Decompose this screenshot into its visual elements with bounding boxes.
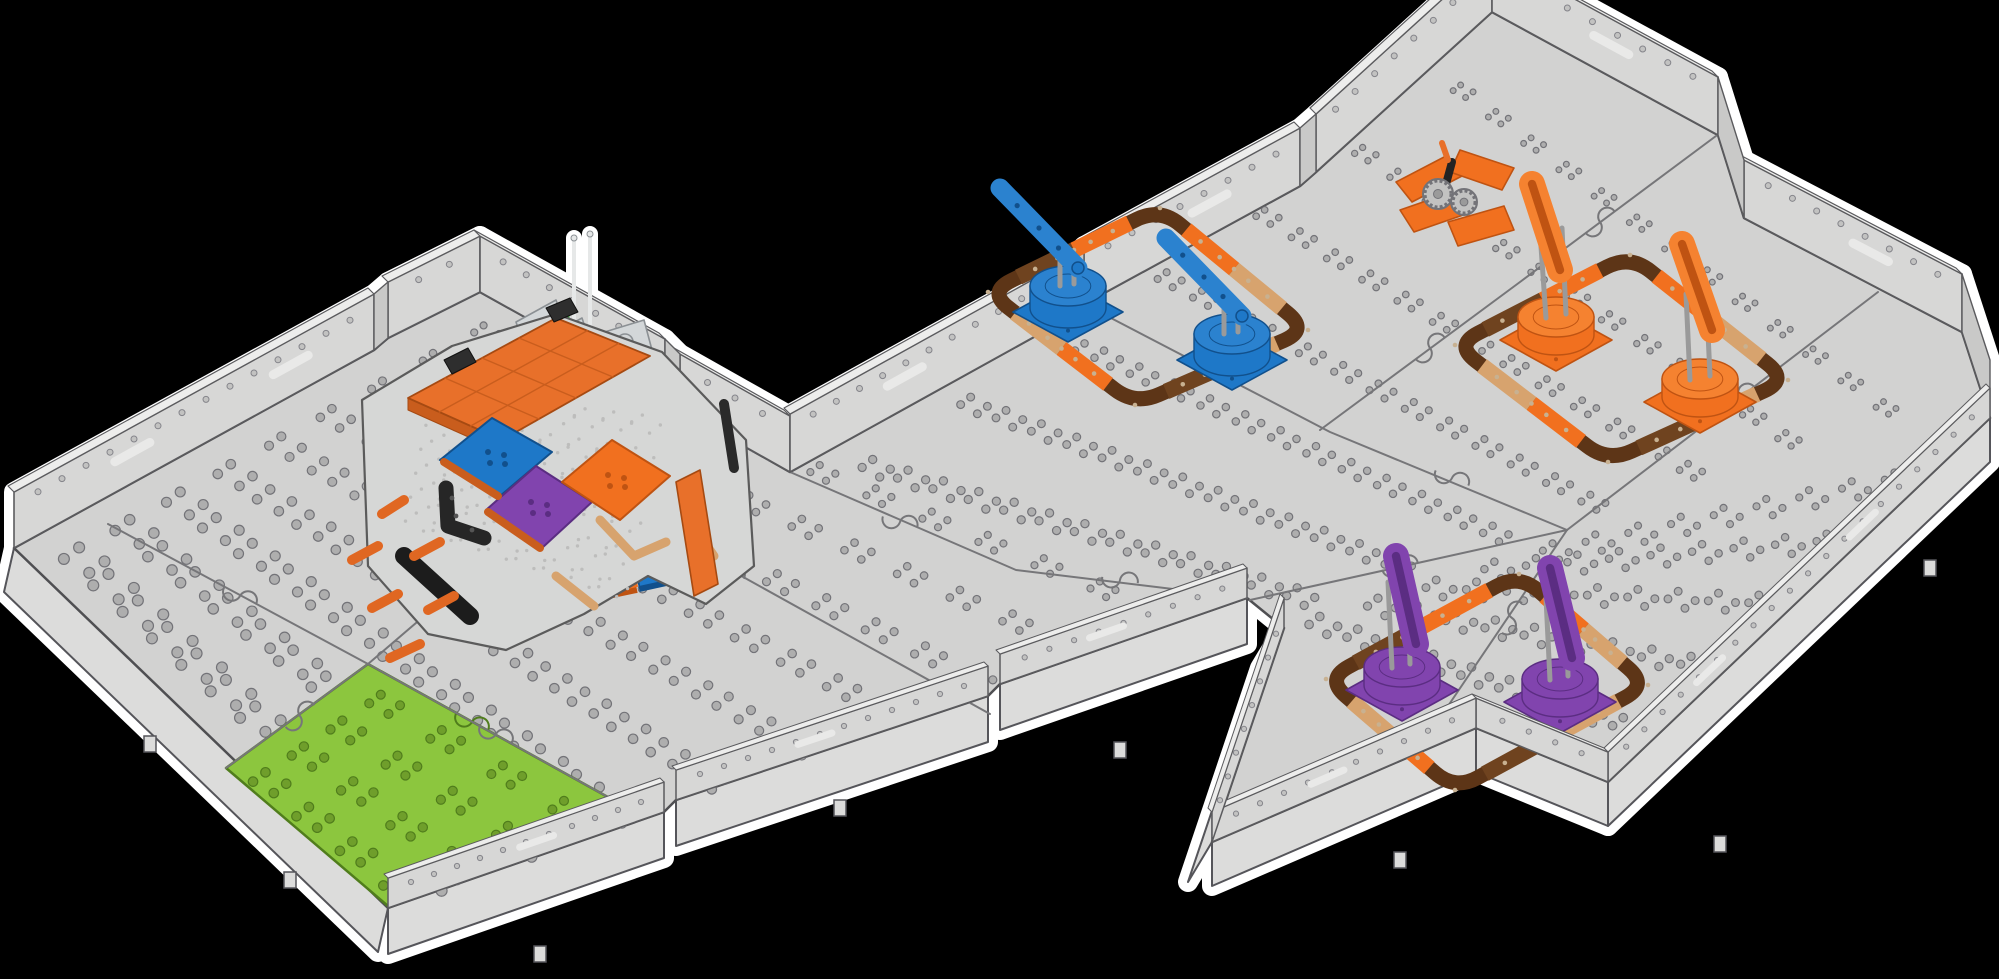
base-foot — [1114, 742, 1126, 758]
base-foot — [534, 946, 546, 962]
base-foot — [1714, 836, 1726, 852]
base-foot — [1394, 852, 1406, 868]
base-foot — [1924, 560, 1936, 576]
base-foot — [284, 872, 296, 888]
field-canvas — [0, 0, 1999, 979]
base-foot — [144, 736, 156, 752]
wall-endcap — [374, 282, 388, 350]
base-foot — [834, 800, 846, 816]
vex-field-scene — [0, 0, 1999, 979]
